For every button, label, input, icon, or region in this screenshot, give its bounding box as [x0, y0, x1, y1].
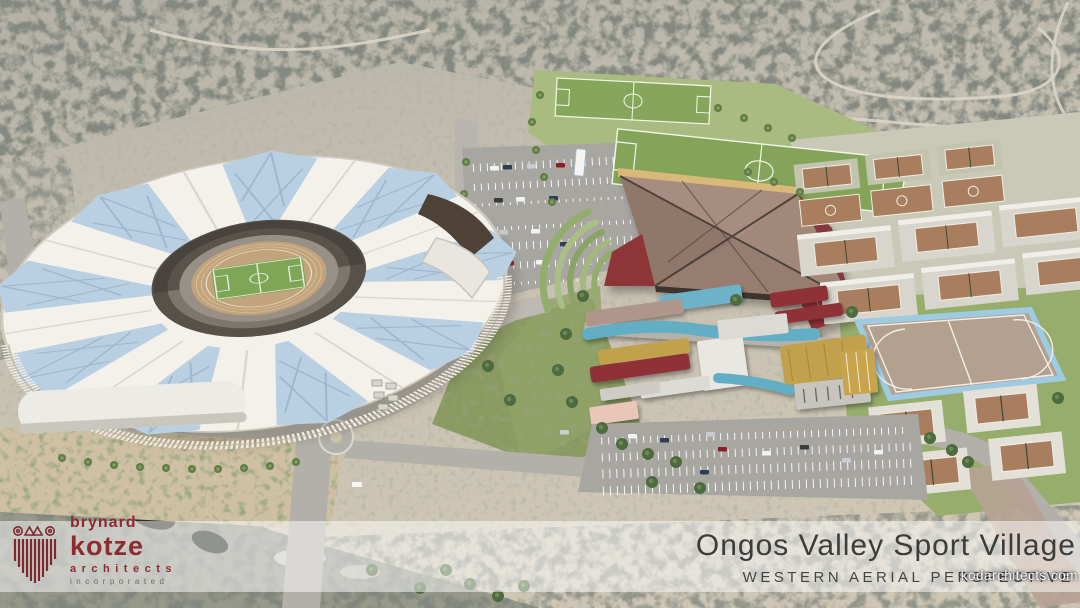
logo-name-first: brynard: [70, 515, 177, 531]
title-block: Ongos Valley Sport Village WESTERN AERIA…: [520, 521, 1080, 592]
watermark-text: kodarchitects.com: [961, 568, 1078, 583]
soccer-field-upper: [555, 78, 711, 124]
rendering-canvas: brynard kotze architects incorporated On…: [0, 0, 1080, 608]
architect-logo: brynard kotze architects incorporated: [12, 515, 177, 589]
gold-pavilion: [840, 348, 878, 395]
logo-profession: architects: [70, 564, 177, 575]
footer-band: brynard kotze architects incorporated On…: [0, 521, 1080, 592]
logo-incorporated: incorporated: [70, 578, 177, 586]
bus: [574, 149, 586, 177]
logo-name-last: kotze: [70, 533, 177, 560]
logo-column-icon: [12, 525, 60, 589]
project-title: Ongos Valley Sport Village: [520, 529, 1076, 563]
